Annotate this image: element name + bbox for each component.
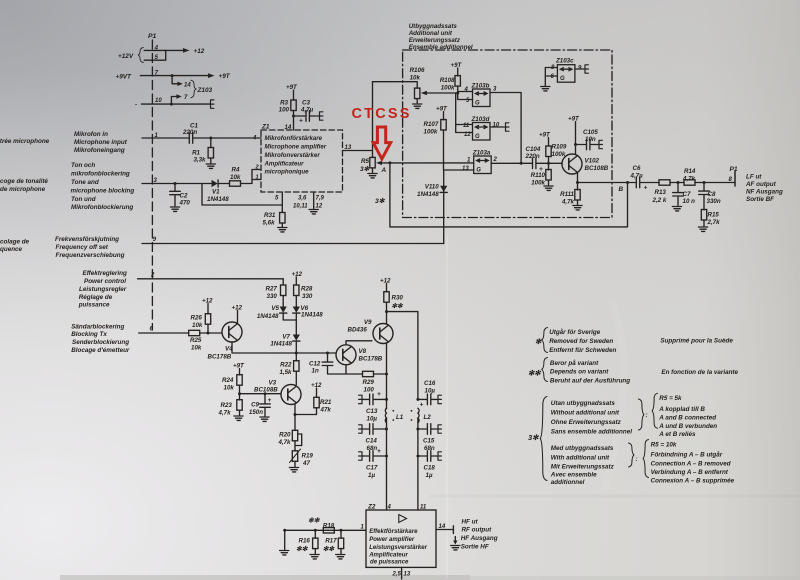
svg-text:10k: 10k [410, 75, 421, 82]
svg-text:Ton und: Ton und [71, 196, 96, 203]
svg-text:R3: R3 [280, 100, 288, 107]
svg-text:330: 330 [267, 293, 278, 300]
svg-text:V7: V7 [282, 334, 290, 341]
svg-text:P1: P1 [148, 33, 157, 40]
svg-text:CTCSS: CTCSS [352, 106, 412, 122]
svg-text:Mikrofonverstärker: Mikrofonverstärker [265, 152, 321, 159]
svg-text:Sortie BF: Sortie BF [746, 196, 774, 203]
svg-text:330n: 330n [707, 198, 721, 205]
svg-text:Avec ensemble: Avec ensemble [550, 472, 597, 479]
svg-text:Utbyggnadssats: Utbyggnadssats [409, 23, 458, 30]
svg-text:R108: R108 [440, 77, 455, 84]
svg-text:4: 4 [464, 87, 469, 93]
svg-text:+: + [377, 448, 381, 455]
svg-text:11: 11 [420, 505, 427, 511]
svg-text:4,7µ: 4,7µ [300, 107, 314, 114]
svg-text:+12: +12 [194, 48, 205, 55]
svg-text:14: 14 [285, 125, 292, 131]
svg-text:Blocking Tx: Blocking Tx [71, 331, 107, 338]
svg-text:Connexion A – B supprimée: Connexion A – B supprimée [651, 478, 735, 485]
svg-text:C2: C2 [180, 193, 188, 200]
svg-text:Utan utbyggnadssats: Utan utbyggnadssats [551, 400, 616, 407]
svg-text:Beruht auf der Ausführung: Beruht auf der Ausführung [550, 378, 630, 385]
svg-text:+9T: +9T [451, 62, 463, 69]
svg-text:Supprimé pour la Suède: Supprimé pour la Suède [660, 338, 733, 345]
svg-text:Depends on variant: Depends on variant [550, 369, 609, 376]
svg-text:R23: R23 [221, 402, 233, 409]
svg-text:5,6k: 5,6k [263, 220, 276, 227]
svg-text:12: 12 [316, 204, 323, 210]
svg-text:Z103: Z103 [197, 87, 213, 94]
svg-text:A and B connected: A and B connected [658, 415, 716, 422]
svg-text:Erweiterungssatz: Erweiterungssatz [409, 37, 461, 44]
svg-text:R14: R14 [684, 168, 696, 175]
svg-text:Ensemble additionnel: Ensemble additionnel [409, 44, 473, 51]
svg-text:C16: C16 [424, 380, 436, 387]
svg-text:R16: R16 [299, 538, 311, 545]
svg-text:4,7k: 4,7k [218, 410, 232, 417]
svg-text:R29: R29 [363, 379, 375, 386]
svg-text:4,7µ: 4,7µ [630, 173, 644, 180]
svg-text:R25: R25 [190, 337, 202, 344]
svg-text:C13: C13 [366, 408, 378, 415]
svg-text:C15: C15 [423, 438, 435, 445]
svg-text:RF output: RF output [462, 527, 493, 534]
svg-text:Frequency off set: Frequency off set [56, 244, 109, 251]
svg-text:Z103c: Z103c [555, 58, 574, 65]
svg-text:V3: V3 [269, 380, 277, 387]
svg-text:puissance: puissance [78, 302, 110, 309]
svg-text:A kopplad till B: A kopplad till B [658, 406, 705, 413]
svg-text:Amplificateur: Amplificateur [368, 552, 408, 558]
svg-text:R13: R13 [655, 189, 667, 196]
svg-text:3,6: 3,6 [298, 196, 307, 202]
svg-text:3,3k: 3,3k [193, 157, 206, 164]
svg-text:4: 4 [154, 45, 159, 51]
svg-text:+9T: +9T [286, 84, 298, 91]
svg-text:R4: R4 [232, 167, 240, 174]
svg-text:+9VT: +9VT [116, 73, 133, 80]
svg-text:C9: C9 [251, 402, 259, 409]
svg-text:3✻: 3✻ [360, 165, 371, 173]
svg-text:BD436: BD436 [348, 327, 368, 334]
svg-text:Entfernt für Schweden: Entfernt für Schweden [549, 347, 616, 354]
svg-text:+9T: +9T [568, 116, 580, 123]
svg-text:2,7k: 2,7k [707, 219, 721, 226]
svg-text:C6: C6 [633, 165, 641, 172]
svg-text:+9T: +9T [436, 106, 448, 113]
svg-text:R5 = 10k: R5 = 10k [651, 442, 677, 449]
svg-text:150n: 150n [249, 409, 263, 416]
svg-text:10: 10 [155, 98, 162, 104]
svg-text:R20: R20 [279, 432, 291, 439]
svg-text:Ohne Erweiterungssatz: Ohne Erweiterungssatz [551, 419, 622, 426]
svg-text:Mikrofon in: Mikrofon in [74, 131, 108, 138]
svg-text:R109: R109 [552, 144, 567, 151]
svg-text:Z103d: Z103d [471, 116, 490, 123]
svg-text:R111: R111 [560, 191, 574, 198]
svg-text:220n: 220n [182, 129, 197, 136]
svg-text:Sans ensemble additionnel: Sans ensemble additionnel [551, 428, 632, 435]
svg-text:V8: V8 [359, 348, 367, 355]
svg-text:4,7k: 4,7k [277, 439, 291, 446]
svg-text:R5 = 5k: R5 = 5k [659, 395, 682, 402]
svg-text:coge de tonalité: coge de tonalité [0, 178, 48, 185]
svg-text:Mikrofonblockierung: Mikrofonblockierung [71, 204, 133, 211]
svg-text:4: 4 [252, 136, 257, 142]
svg-text:2: 2 [150, 272, 155, 278]
svg-text::: : [636, 456, 638, 463]
svg-text:1N4148: 1N4148 [207, 196, 229, 203]
svg-text:100k: 100k [531, 180, 545, 187]
svg-text:+: + [377, 391, 381, 398]
svg-text:R26: R26 [191, 315, 203, 322]
svg-text:7,9: 7,9 [316, 196, 325, 202]
svg-text:R106: R106 [410, 67, 425, 74]
svg-text:Effektförstärkare: Effektförstärkare [369, 529, 418, 535]
svg-text:AF output: AF output [745, 181, 777, 188]
svg-text:R27: R27 [266, 286, 278, 293]
svg-text:+: + [299, 118, 303, 125]
svg-text:G: G [475, 101, 480, 107]
svg-text:Mikrofonförstärkare: Mikrofonförstärkare [265, 135, 323, 142]
svg-text:Mikrofoneingang: Mikrofoneingang [74, 147, 125, 154]
svg-text:68n: 68n [424, 445, 435, 452]
svg-text:Senderblockierung: Senderblockierung [72, 339, 129, 346]
svg-text:Without additional unit: Without additional unit [551, 410, 620, 417]
svg-text:10µ: 10µ [367, 416, 378, 423]
svg-text:Blocage d'émetteur: Blocage d'émetteur [71, 347, 130, 354]
svg-text:1N4148: 1N4148 [270, 341, 292, 348]
svg-text:V102: V102 [585, 158, 600, 165]
svg-text:C104: C104 [526, 146, 541, 153]
svg-text:Power amplifier: Power amplifier [369, 537, 415, 543]
svg-text:HF ut: HF ut [462, 519, 479, 526]
svg-text:R110: R110 [531, 172, 546, 179]
svg-text:B: B [619, 186, 624, 193]
svg-text:Sortie HF: Sortie HF [461, 544, 489, 551]
svg-text:R15: R15 [708, 212, 720, 219]
svg-text:BC108B: BC108B [254, 387, 278, 394]
svg-text:G: G [475, 134, 480, 140]
svg-text:1,5k: 1,5k [279, 369, 292, 376]
svg-text:Tone and: Tone and [71, 179, 99, 186]
svg-text:10,11: 10,11 [293, 204, 308, 210]
svg-text:220n: 220n [525, 153, 540, 160]
svg-text:microphone blocking: microphone blocking [71, 188, 135, 195]
svg-text:4,7k: 4,7k [682, 176, 696, 183]
svg-text:G: G [476, 168, 481, 174]
svg-text:R17: R17 [325, 538, 337, 545]
svg-text:10n: 10n [585, 136, 596, 143]
svg-text:R18: R18 [323, 522, 335, 529]
svg-text:C12: C12 [309, 361, 321, 368]
svg-text:2,2 k: 2,2 k [652, 197, 667, 204]
svg-text:+12: +12 [292, 271, 303, 278]
svg-text:Effektreglering: Effektreglering [83, 270, 127, 277]
svg-text:microphonique: microphonique [265, 169, 310, 176]
svg-text:Frequenzverschiebung: Frequenzverschiebung [56, 252, 125, 259]
svg-text:47k: 47k [320, 407, 332, 414]
svg-text:10k: 10k [191, 345, 202, 352]
svg-text:2,5: 2,5 [392, 572, 402, 578]
svg-text:+: + [644, 185, 648, 192]
svg-text:+12: +12 [380, 278, 391, 285]
svg-text:V9: V9 [364, 319, 372, 326]
svg-text:C8: C8 [708, 191, 716, 198]
svg-text:Frekvensförskjutning: Frekvensförskjutning [55, 236, 119, 243]
svg-text:+: + [420, 402, 424, 409]
svg-text:4,7k: 4,7k [561, 199, 575, 206]
svg-text:C3: C3 [302, 100, 310, 107]
svg-text:470: 470 [179, 200, 191, 207]
svg-text:-: - [135, 102, 137, 109]
svg-text:Microphone input: Microphone input [74, 139, 128, 146]
svg-text:68n: 68n [367, 445, 378, 452]
svg-text:100k: 100k [424, 129, 438, 136]
svg-text:Mit Erweiterungssatz: Mit Erweiterungssatz [551, 464, 615, 471]
svg-text:Réglage de: Réglage de [79, 294, 113, 301]
svg-text:100: 100 [279, 107, 290, 114]
svg-text:BC178B: BC178B [208, 354, 232, 361]
svg-text:1N4148: 1N4148 [301, 312, 323, 319]
svg-text:Amplificateur: Amplificateur [264, 161, 305, 168]
svg-text:With additional unit: With additional unit [551, 454, 610, 461]
svg-text:✻: ✻ [535, 337, 542, 346]
svg-text:C18: C18 [424, 465, 436, 472]
svg-text:R30: R30 [392, 295, 404, 302]
svg-text:R21: R21 [320, 399, 332, 406]
svg-text:C105: C105 [583, 129, 598, 136]
svg-text:quence: quence [0, 246, 23, 253]
svg-text:Utgår för Sverige: Utgår för Sverige [549, 328, 601, 336]
svg-text:10k: 10k [224, 385, 235, 392]
svg-text:additionnel: additionnel [551, 479, 585, 486]
svg-text:En fonction de la variante: En fonction de la variante [661, 369, 738, 376]
svg-text:10 n: 10 n [683, 198, 696, 205]
svg-text:3✻: 3✻ [528, 433, 539, 442]
svg-text:Med utbyggnadssats: Med utbyggnadssats [551, 445, 614, 452]
svg-text:de puissance: de puissance [370, 559, 409, 565]
svg-text:100: 100 [364, 387, 375, 394]
svg-text:P1: P1 [730, 166, 738, 173]
svg-text:10k: 10k [230, 174, 241, 181]
svg-text:1N4148: 1N4148 [257, 313, 279, 320]
svg-text:+9T: +9T [219, 73, 231, 80]
svg-text:100k: 100k [552, 151, 566, 158]
svg-text:Z1: Z1 [261, 124, 270, 131]
svg-text:10µ: 10µ [425, 388, 436, 395]
svg-text:A et B reliés: A et B reliés [658, 431, 696, 438]
svg-text:ntrée microphone: ntrée microphone [0, 138, 50, 145]
svg-text:330: 330 [302, 293, 313, 300]
svg-text:3✻: 3✻ [375, 197, 386, 205]
svg-text:C17: C17 [366, 465, 378, 472]
svg-text:Z2: Z2 [367, 504, 376, 511]
svg-text:Beror på variant: Beror på variant [550, 359, 599, 367]
svg-text:A: A [381, 167, 387, 174]
svg-text:1N4148: 1N4148 [417, 191, 439, 198]
svg-text:14: 14 [184, 83, 191, 89]
svg-text:R1: R1 [192, 150, 200, 157]
svg-text:100k: 100k [441, 85, 455, 92]
svg-text:+12V: +12V [118, 53, 134, 60]
svg-text:BC178B: BC178B [359, 356, 383, 363]
svg-text:1: 1 [256, 175, 259, 181]
svg-text:V1: V1 [212, 189, 220, 196]
svg-text:L2: L2 [424, 414, 432, 421]
svg-text:13: 13 [462, 166, 469, 172]
svg-text:R22: R22 [280, 362, 292, 369]
svg-text:10k: 10k [192, 322, 203, 329]
svg-text:2: 2 [493, 157, 498, 163]
svg-text:Förbindning A – B utgår: Förbindning A – B utgår [651, 451, 723, 459]
svg-text:+9T: +9T [539, 132, 551, 139]
svg-text:R24: R24 [222, 377, 234, 384]
svg-text:Sändarblockering: Sändarblockering [71, 324, 124, 331]
svg-text:✻✻: ✻✻ [528, 369, 541, 378]
svg-text:de microphone: de microphone [0, 186, 46, 193]
svg-text:Ton och: Ton och [71, 162, 95, 169]
svg-text:✻✻: ✻✻ [392, 302, 405, 310]
svg-text:Additional unit: Additional unit [408, 30, 453, 37]
svg-text:1µ: 1µ [368, 472, 375, 479]
svg-text:LF ut: LF ut [746, 174, 762, 181]
svg-text:13: 13 [404, 572, 411, 578]
svg-text:✻✻: ✻✻ [296, 545, 309, 553]
svg-text:Removed for Sweden: Removed for Sweden [549, 338, 613, 345]
svg-text:HF Ausgang: HF Ausgang [461, 535, 498, 542]
svg-text:colage de: colage de [0, 239, 30, 246]
svg-text:Z103b: Z103b [471, 83, 490, 90]
svg-text:A und B verbunden: A und B verbunden [658, 423, 717, 430]
svg-text:+: + [268, 397, 272, 404]
svg-text:1n: 1n [312, 368, 319, 375]
svg-text:47: 47 [302, 460, 310, 467]
svg-text:V110: V110 [425, 184, 440, 191]
svg-text:Power control: Power control [84, 278, 126, 285]
svg-text:Verbindung A – B entfernt: Verbindung A – B entfernt [651, 469, 729, 476]
svg-text:R28: R28 [301, 286, 313, 293]
svg-text:C14: C14 [366, 438, 378, 445]
svg-text::: : [646, 412, 648, 419]
svg-text:C7: C7 [683, 191, 691, 198]
svg-text:✻✻: ✻✻ [308, 517, 321, 525]
svg-text:BC108B: BC108B [585, 165, 609, 172]
svg-text:Microphone amplifier: Microphone amplifier [265, 144, 327, 151]
svg-text:V5: V5 [271, 305, 279, 312]
svg-text:Connection A – B removed: Connection A – B removed [651, 460, 731, 467]
svg-text:Leistungsverstärker: Leistungsverstärker [369, 545, 427, 551]
svg-text:R19: R19 [302, 453, 314, 460]
svg-text:mikrofonblockering: mikrofonblockering [71, 171, 130, 178]
svg-text:Z103a: Z103a [472, 150, 491, 157]
svg-text:1µ: 1µ [426, 472, 433, 479]
svg-text:4: 4 [387, 505, 392, 511]
svg-text:R107: R107 [424, 121, 439, 128]
svg-text:L1: L1 [396, 414, 404, 421]
svg-text:R31: R31 [264, 212, 276, 219]
svg-text:✻✻: ✻✻ [323, 545, 336, 553]
svg-text:R5: R5 [361, 158, 369, 165]
svg-text:NF Ausgang: NF Ausgang [746, 189, 783, 196]
svg-text:Leistungsregler: Leistungsregler [79, 286, 127, 293]
svg-text:G: G [560, 76, 565, 82]
